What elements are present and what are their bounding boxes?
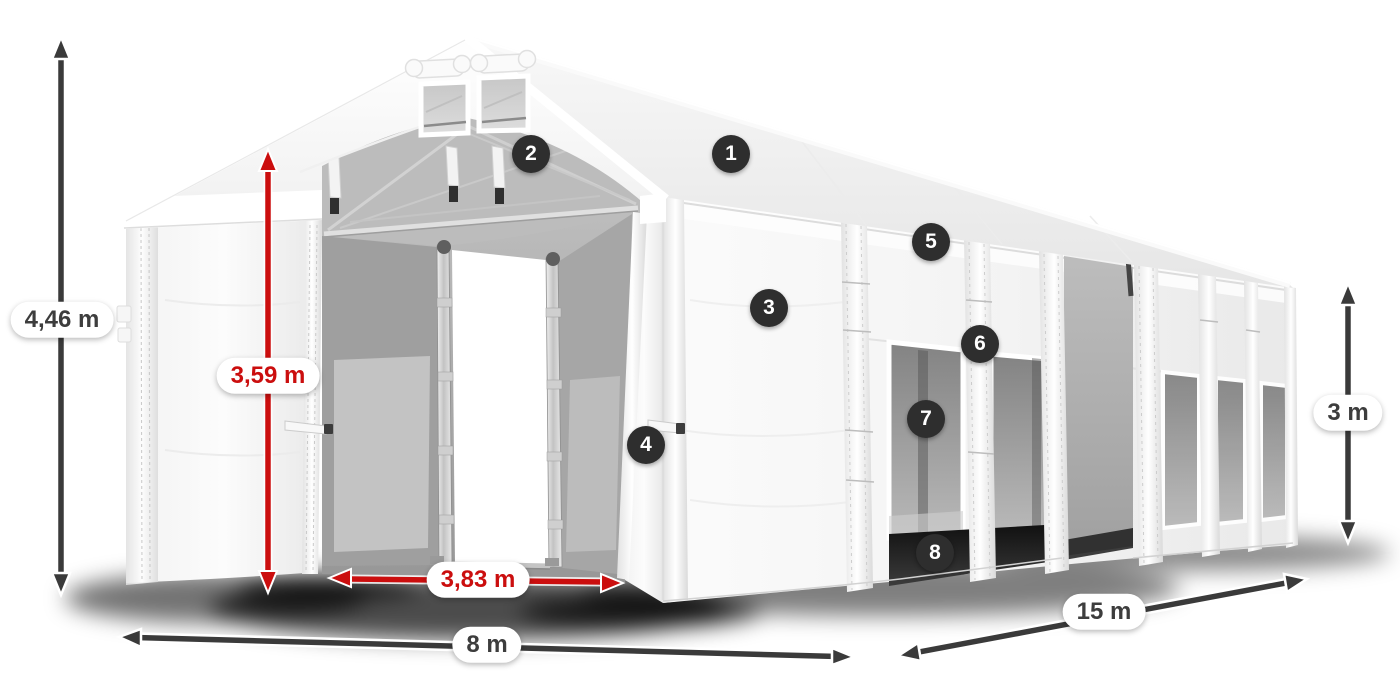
- tent-illustration: [0, 0, 1400, 700]
- dimension-label-door-height: 3,59 m: [217, 358, 320, 394]
- product-diagram: 4,46 m 3,59 m 3,83 m 8 m 15 m 3 m 1 2 3 …: [0, 0, 1400, 700]
- callout-2[interactable]: 2: [512, 135, 550, 173]
- dimension-label-side-length: 15 m: [1063, 594, 1146, 630]
- callout-6[interactable]: 6: [961, 325, 999, 363]
- callout-4[interactable]: 4: [627, 426, 665, 464]
- dimension-label-side-height: 3 m: [1313, 395, 1382, 431]
- dimension-label-total-height: 4,46 m: [11, 302, 114, 338]
- tent-interior: [322, 118, 642, 582]
- callout-5[interactable]: 5: [912, 223, 950, 261]
- callout-7[interactable]: 7: [907, 400, 945, 438]
- callout-1[interactable]: 1: [712, 135, 750, 173]
- gable-vent-windows: [406, 51, 536, 136]
- dimension-label-front-width: 8 m: [452, 627, 521, 663]
- callout-3[interactable]: 3: [750, 289, 788, 327]
- callout-8[interactable]: 8: [916, 534, 954, 572]
- dimension-label-door-width: 3,83 m: [427, 562, 530, 598]
